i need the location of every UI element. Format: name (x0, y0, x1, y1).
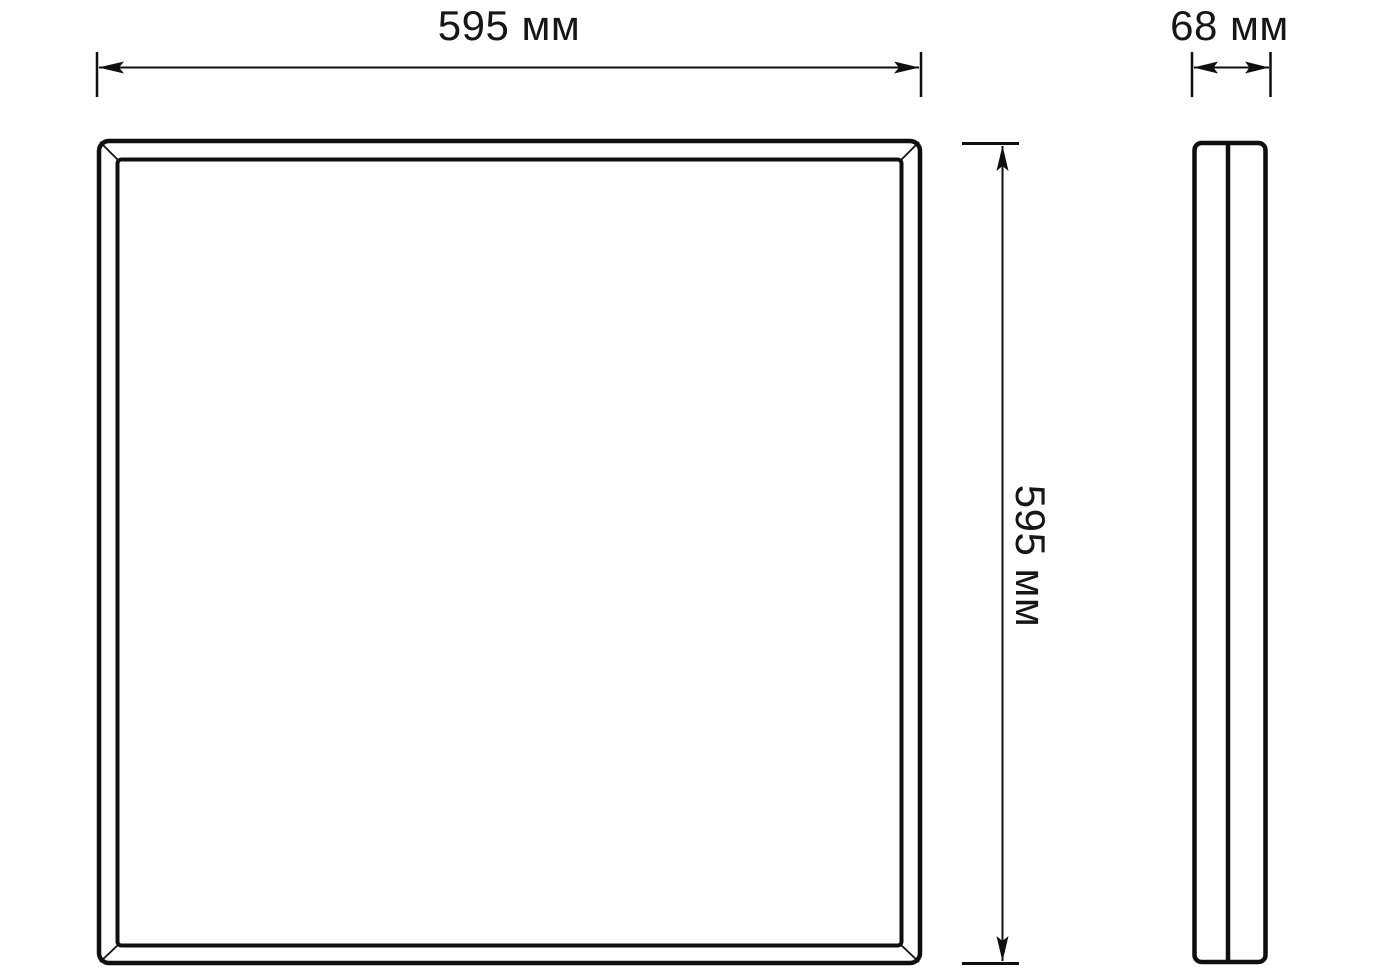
height-dimension: 595 мм (962, 144, 1054, 964)
front-view-inner-frame (118, 160, 902, 946)
width-dimension: 595 мм (97, 2, 921, 97)
depth-dimension: 68 мм (1170, 2, 1289, 97)
panel-dimension-drawing: 595 мм 595 мм 68 мм (0, 0, 1388, 971)
height-dimension-label: 595 мм (1007, 485, 1054, 628)
side-view (1195, 143, 1266, 962)
front-view (99, 141, 920, 963)
dimension-drawing-canvas: 595 мм 595 мм 68 мм (0, 0, 1388, 971)
width-dimension-label: 595 мм (438, 2, 581, 49)
depth-dimension-label: 68 мм (1170, 2, 1289, 49)
